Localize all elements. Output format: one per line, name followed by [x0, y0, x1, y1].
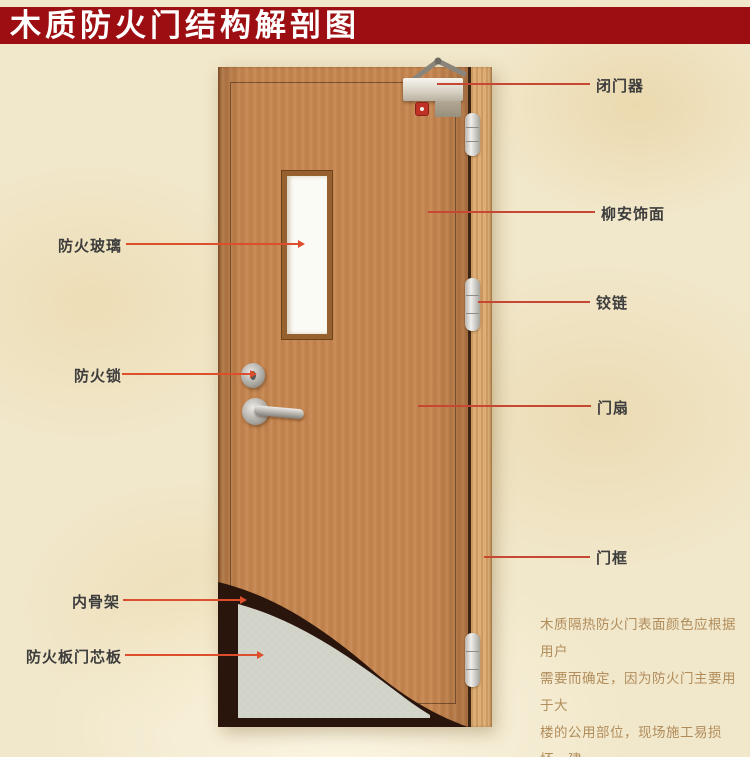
hinge-top-icon: [465, 113, 480, 156]
fire-glass-window: [282, 171, 332, 339]
label-core-panel: 防火板门芯板: [26, 646, 122, 667]
title-banner: 木质防火门结构解剖图: [0, 7, 750, 44]
label-hinge: 铰链: [596, 292, 628, 313]
arrow-tip-icon: [240, 596, 247, 604]
door-frame: [471, 67, 492, 727]
label-veneer: 柳安饰面: [601, 203, 665, 224]
label-door-closer: 闭门器: [596, 75, 644, 96]
leader-core-panel: [125, 654, 258, 656]
door-closer-body: [403, 78, 463, 101]
leader-veneer: [428, 211, 595, 213]
description-line: 楼的公用部位，现场施工易损坏，建: [540, 719, 745, 757]
alarm-indicator-icon: [415, 102, 429, 116]
hinge-bottom-icon: [465, 633, 480, 687]
leader-fire-glass: [126, 243, 299, 245]
arrow-tip-icon: [250, 370, 257, 378]
door-cutaway: [218, 577, 468, 727]
leader-hinge: [478, 301, 590, 303]
label-inner-skeleton: 内骨架: [72, 591, 120, 612]
door-assembly: [218, 67, 492, 727]
leader-door-closer: [437, 83, 590, 85]
label-fire-glass: 防火玻璃: [58, 235, 122, 256]
leader-fire-lock: [122, 373, 251, 375]
door-leaf: [218, 67, 468, 727]
arrow-tip-icon: [257, 651, 264, 659]
leader-door-leaf: [418, 405, 591, 407]
arrow-tip-icon: [298, 240, 305, 248]
leader-inner-skeleton: [123, 599, 241, 601]
description-text: 木质隔热防火门表面颜色应根据用户 需要而确定，因为防火门主要用于大 楼的公用部位…: [540, 611, 745, 757]
label-door-leaf: 门扇: [597, 397, 629, 418]
label-fire-lock: 防火锁: [74, 365, 122, 386]
page-background: 木质防火门结构解剖图: [0, 0, 750, 757]
description-line: 需要而确定，因为防火门主要用于大: [540, 665, 745, 719]
indicator-dot-icon: [420, 107, 424, 111]
hinge-middle-icon: [465, 278, 480, 331]
closer-mount-plate: [435, 101, 461, 117]
leader-door-frame: [484, 556, 590, 558]
description-line: 木质隔热防火门表面颜色应根据用户: [540, 611, 745, 665]
core-panel-texture: [238, 604, 430, 718]
label-door-frame: 门框: [596, 547, 628, 568]
